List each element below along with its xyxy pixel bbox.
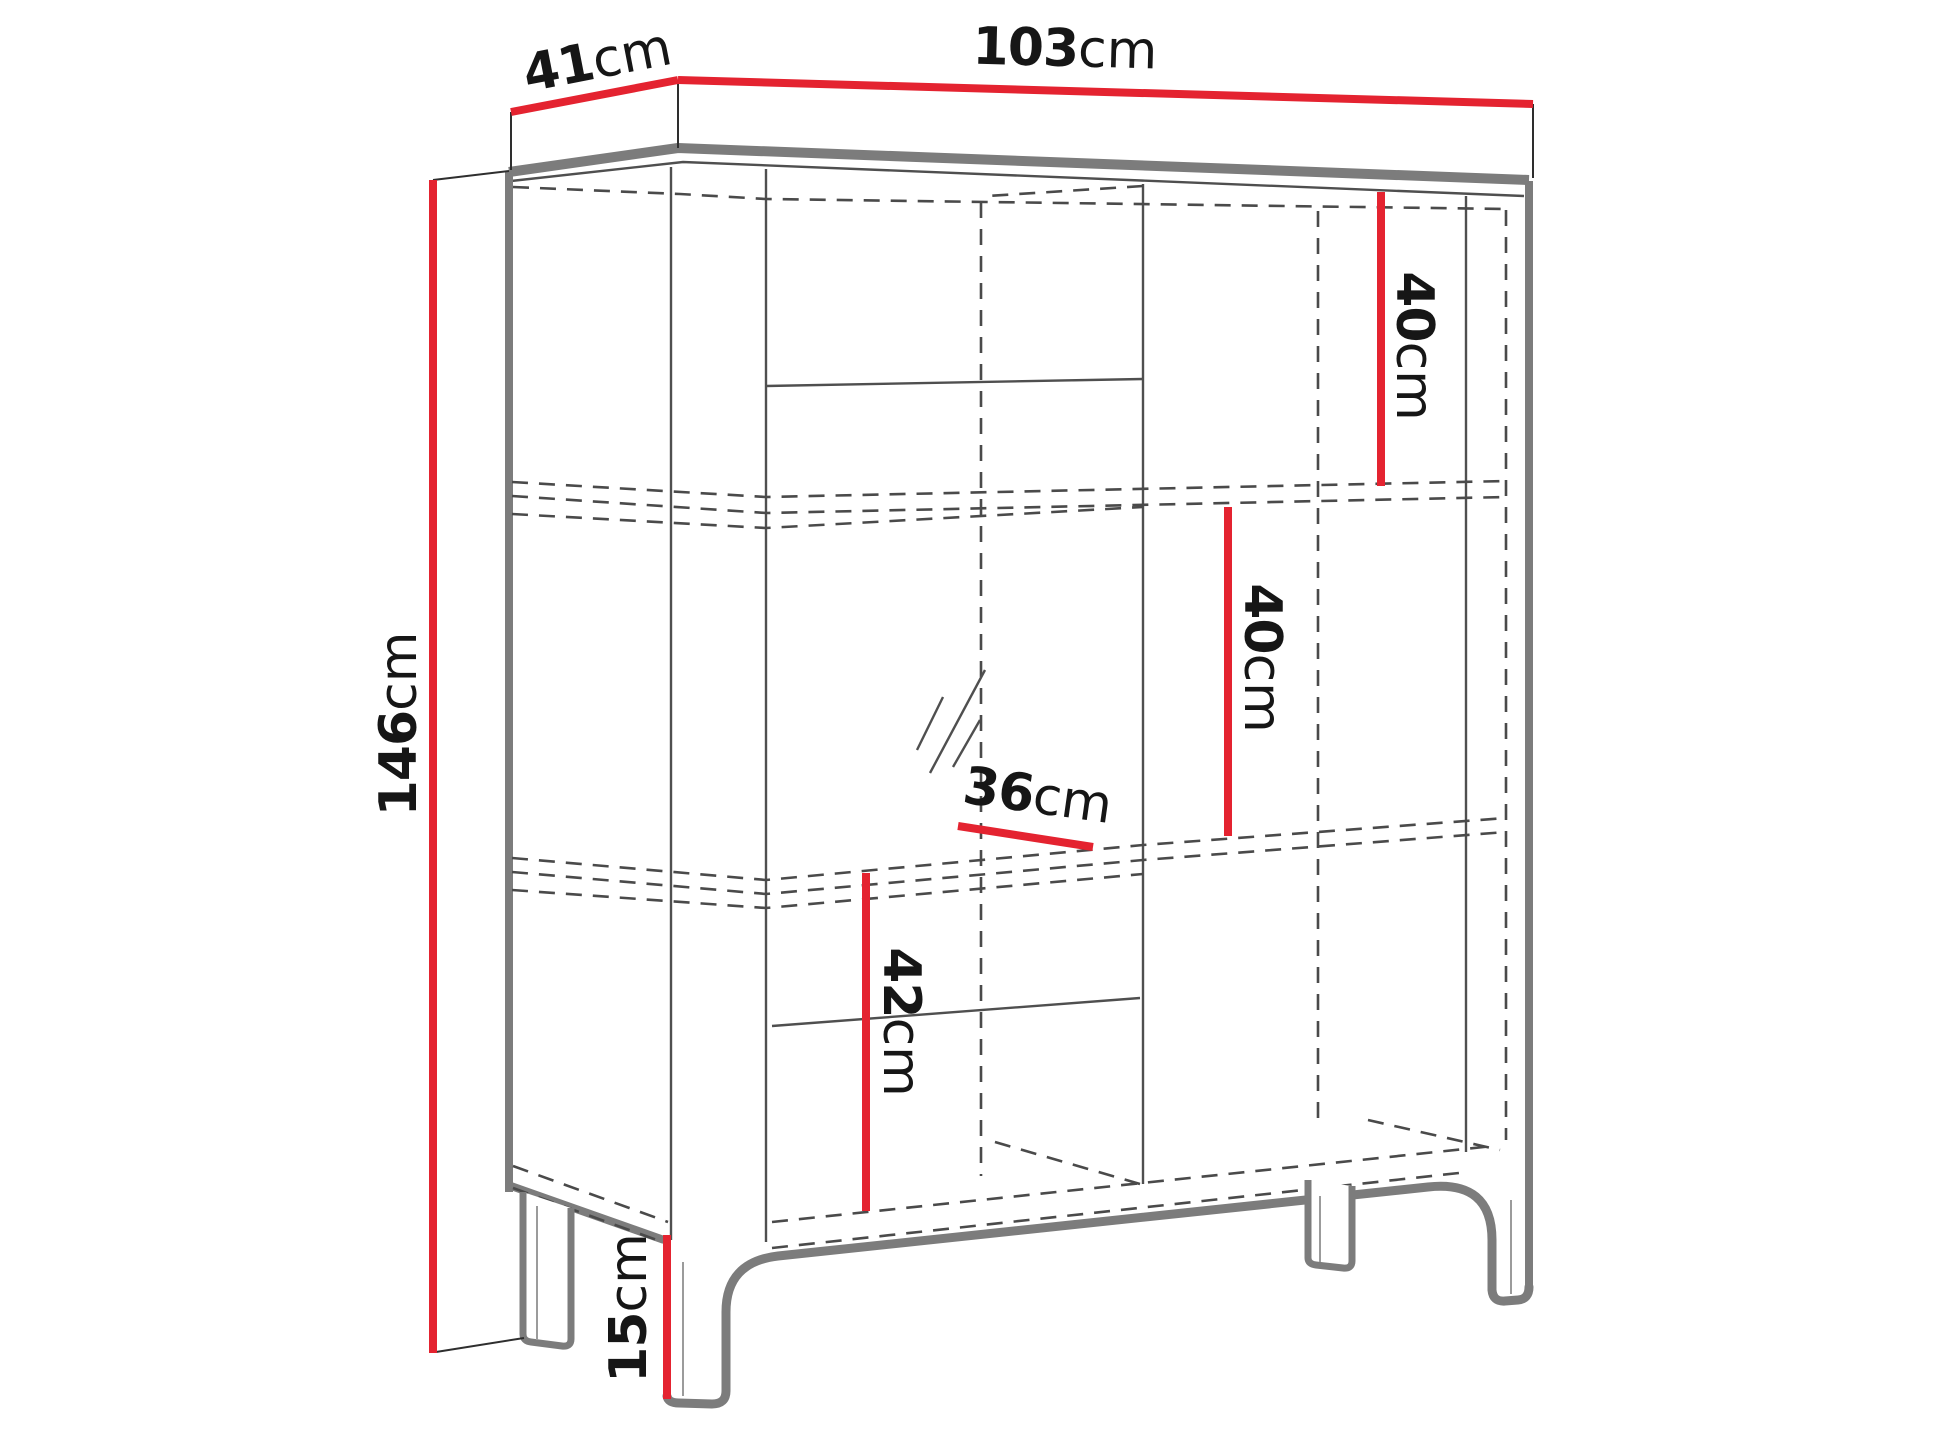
dim-label-height: 146cm [369,632,429,817]
back-right-leg-fill [1308,1180,1352,1264]
bottom-front-lower-line [772,1172,1468,1248]
shelf1-front-bottom-line [512,507,1143,528]
shelf2-back-line [512,818,1506,880]
upper-glass-shelf-line [766,379,1143,386]
shelf1-back-line [512,481,1506,497]
witness-lines [433,80,1533,1352]
bottom-front-upper-line [772,1146,1493,1222]
dim-label-leg-height: 15cm [599,1233,659,1383]
dim-line-width-103 [678,80,1533,104]
back-left-leg-fill [523,1192,571,1342]
cabinet-dimension-diagram: 41cm 103cm 146cm 40cm 40cm 42cm 36cm 15c… [0,0,1940,1455]
dim-label-lower-left-compartment: 42cm [871,947,931,1097]
glass-details [766,379,1143,1026]
dim-label-width: 103cm [972,17,1158,82]
cabinet-structure [509,148,1529,1288]
dimension-diagram-page: 41cm 103cm 146cm 40cm 40cm 42cm 36cm 15c… [0,0,1940,1455]
height-top-witness-line [433,171,509,180]
dim-label-middle-right-compartment: 40cm [1232,583,1292,733]
legs [523,1180,1529,1404]
front-legs-and-rail-outline [667,1186,1529,1404]
dimension-labels: 41cm 103cm 146cm 40cm 40cm 42cm 36cm 15c… [369,17,1444,1383]
shelf2-front-top-line [512,832,1506,894]
bottom-right-depth-line [1368,1120,1500,1150]
divider-bottom-depth-line [988,1140,1140,1184]
glass-reflection-mark-1 [917,697,943,750]
dimension-lines [433,80,1533,1399]
height-bottom-witness-line [436,1338,524,1352]
hidden-lines [512,186,1506,1248]
dim-label-upper-right-compartment: 40cm [1384,271,1444,421]
divider-top-depth-line [988,186,1143,196]
shelf1-front-top-line [512,496,1506,513]
dim-label-inner-shelf-depth: 36cm [959,756,1116,836]
lower-glass-shelf-line [772,998,1140,1026]
